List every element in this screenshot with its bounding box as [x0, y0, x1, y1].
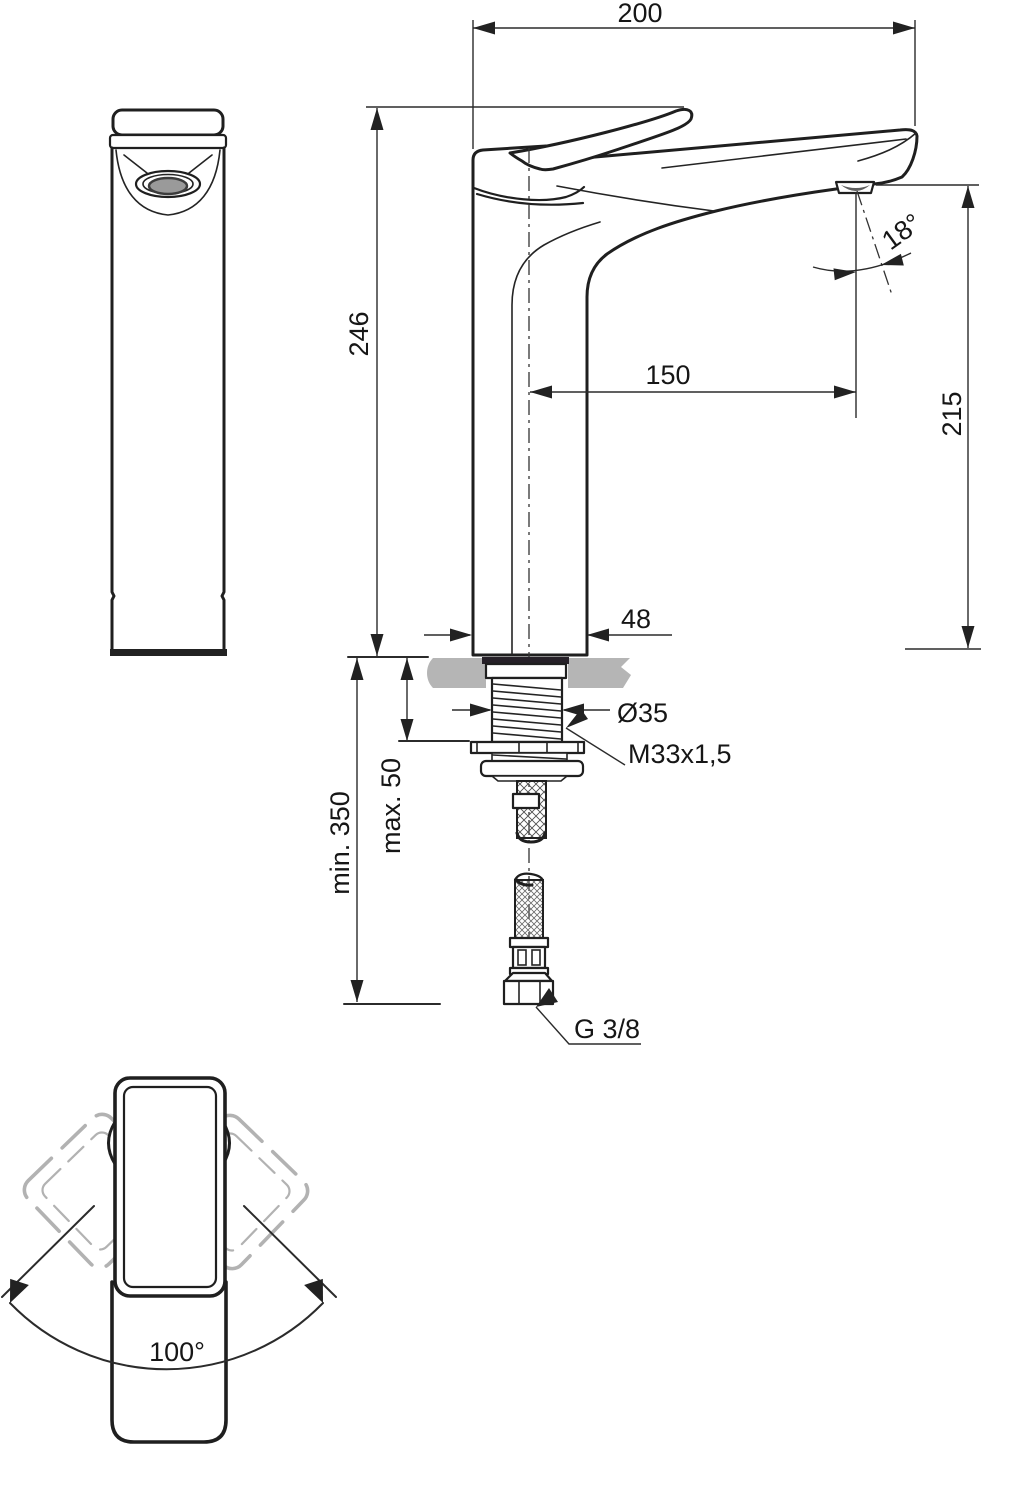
dimension-215: 215: [876, 185, 981, 649]
technical-drawing-page: 200 246 150 215 18°: [0, 0, 1022, 1500]
dim-dia35-label: Ø35: [617, 698, 668, 728]
dim-48-label: 48: [621, 604, 651, 634]
dimension-200: 200: [473, 0, 915, 149]
front-view: [110, 110, 227, 656]
hose-cage-slot-left: [518, 950, 526, 965]
technical-drawing-canvas: 200 246 150 215 18°: [0, 0, 1022, 1500]
dim-max50-label: max. 50: [376, 758, 406, 854]
dimension-18deg: 18°: [813, 191, 927, 295]
dim-100deg-label: 100°: [149, 1337, 205, 1367]
hose-ferrule-upper: [510, 938, 548, 947]
supply-hose-braid: [515, 880, 543, 938]
front-handle-collar: [110, 135, 226, 148]
front-handle: [113, 110, 223, 135]
dim-18deg-label: 18°: [876, 208, 927, 256]
hose-cage-slot-right: [532, 950, 540, 965]
dim-150-label: 150: [645, 360, 690, 390]
dimension-g38: G 3/8: [536, 988, 641, 1044]
front-body-left-edge: [112, 148, 114, 649]
dim-215-label: 215: [937, 391, 967, 436]
side-aerator: [836, 182, 874, 193]
dim-200-label: 200: [617, 0, 662, 28]
horseshoe-washer: [471, 742, 584, 753]
top-view-handle: [115, 1078, 225, 1296]
hose-stub-collar: [513, 794, 539, 808]
mounting-nut: [481, 761, 583, 776]
counter-slab-left: [427, 658, 486, 688]
hex-nut-chamfer: [505, 973, 552, 981]
front-aerator-outlet: [149, 178, 187, 194]
front-body-right-edge: [222, 148, 224, 649]
dim-246-label: 246: [344, 311, 374, 356]
dim-min350-label: min. 350: [325, 791, 355, 895]
dim-m33-label: M33x1,5: [628, 739, 732, 769]
side-view: [427, 109, 917, 1008]
counter-slab-right: [568, 658, 631, 688]
base-flange: [486, 664, 566, 678]
dim-g38-label: G 3/8: [574, 1014, 640, 1044]
top-view: 100°: [0, 1078, 336, 1442]
front-body-base: [110, 649, 227, 656]
hose-stub: [517, 781, 546, 838]
